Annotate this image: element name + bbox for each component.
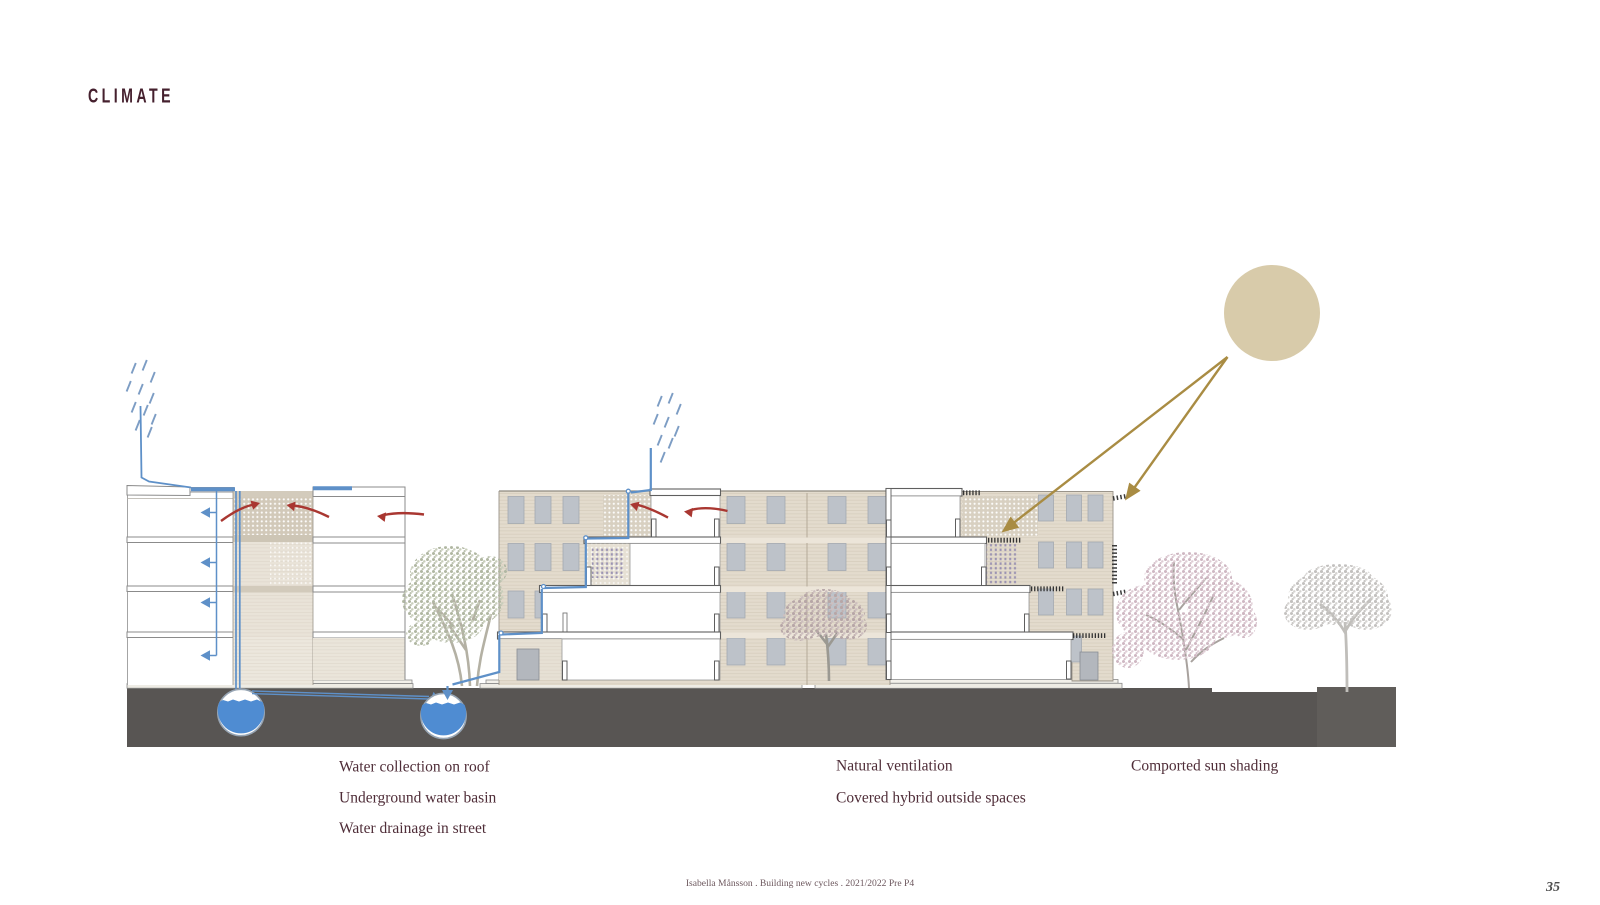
svg-text:Comported sun shading: Comported sun shading <box>1131 758 1278 775</box>
svg-text:Isabella Månsson . Building ne: Isabella Månsson . Building new cycles .… <box>686 878 915 889</box>
svg-text:CLIMATE: CLIMATE <box>88 85 174 108</box>
svg-text:Water drainage in street: Water drainage in street <box>339 820 487 837</box>
svg-text:35: 35 <box>1545 880 1560 895</box>
svg-text:Covered hybrid outside spaces: Covered hybrid outside spaces <box>836 790 1026 807</box>
svg-text:Water collection on roof: Water collection on roof <box>339 759 491 776</box>
svg-text:Underground water basin: Underground water basin <box>339 790 497 807</box>
svg-text:Natural ventilation: Natural ventilation <box>836 758 953 775</box>
